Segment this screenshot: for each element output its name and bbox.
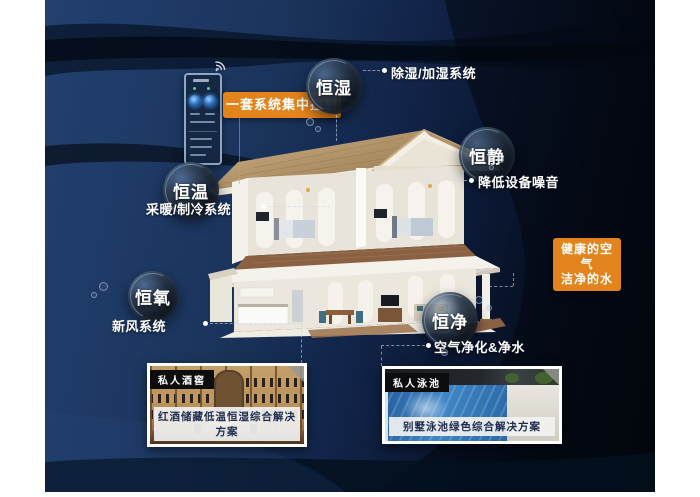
callout-box: 健康的空气 洁净的水 [553,238,621,291]
poster-stage: 一套系统集中控制 恒湿 除湿/加湿系统 恒静 降低设备噪音 恒温 采暖/制冷系统… [45,0,655,492]
connector-temperature [268,206,330,207]
photo-corner-ribbon [288,366,304,382]
connector-humidity-down [336,115,337,141]
connector-quiet [427,180,467,181]
bubble-humidity-label: 恒湿 [316,74,352,99]
micro-bubble [315,126,321,132]
phone-label-bar [205,113,215,115]
phone-row-bar [190,146,212,148]
phone-label-bar [190,113,200,115]
connector-purity-dot [426,343,431,348]
wine-cellar-tag: 私人酒窖 [150,370,214,389]
phone-label-bar [190,121,215,123]
micro-bubble [489,165,494,170]
pool-tag: 私人泳池 [385,373,449,392]
connector-temperature-dot [261,204,266,209]
photo-corner-ribbon [543,369,559,385]
wine-cellar-arch-cabinet [214,370,244,410]
micro-bubble [91,292,97,298]
bubble-oxygen: 恒氧 [128,271,178,321]
connector-oxygen-dot [203,321,208,326]
callout-line1: 健康的空气 [555,242,619,272]
phone-status-dot [207,87,210,90]
phone-header-bar [193,79,209,82]
bubble-quiet-label: 恒静 [469,143,505,168]
wifi-icon [212,58,228,74]
pool-photo: 私人泳池 别墅泳池绿色综合解决方案 [382,366,562,444]
phone-row-bar [190,138,212,140]
connector-control-line [239,118,240,184]
humidity-system-label: 除湿/加湿系统 [391,63,476,82]
micro-bubble [475,296,483,304]
pool-plant [505,373,519,383]
bubble-humidity: 恒湿 [306,58,362,114]
connector-oxygen [210,323,301,324]
connector-humidity [363,70,380,71]
connector-purity [381,345,425,346]
connector-callout-down [513,273,514,286]
poster-frame: 一套系统集中控制 恒湿 除湿/加湿系统 恒静 降低设备噪音 恒温 采暖/制冷系统… [0,0,700,497]
phone-divider [189,131,217,132]
connector-humidity-dot [382,68,387,73]
connector-purity-down [381,346,382,366]
phone-row-bar [190,154,206,156]
pool-caption: 别墅泳池绿色综合解决方案 [389,417,555,436]
phone-status-dot [193,87,196,90]
control-panel-device [184,73,222,165]
connector-callout-left [489,286,513,287]
micro-bubble [441,349,448,356]
micro-bubble [497,156,504,163]
oxygen-system-label: 新风系统 [112,316,166,335]
bubble-oxygen-label: 恒氧 [135,284,171,309]
bubble-purity-label: 恒净 [432,308,468,333]
connector-oxygen-down [301,324,302,363]
micro-bubble [306,118,314,126]
micro-bubble [486,305,492,311]
callout-line2: 洁净的水 [555,272,619,287]
quiet-system-label: 降低设备噪音 [478,172,559,191]
phone-dial-left [189,95,201,107]
wine-cellar-photo: 私人酒窖 红酒储藏低温恒湿综合解决方案 [147,363,307,447]
micro-bubble [99,282,108,291]
connector-quiet-dot [469,178,474,183]
phone-dial-right [204,95,216,107]
wine-cellar-caption: 红酒储藏低温恒湿综合解决方案 [154,407,300,441]
temperature-system-label: 采暖/制冷系统 [146,199,231,218]
pool-edge [385,385,388,441]
